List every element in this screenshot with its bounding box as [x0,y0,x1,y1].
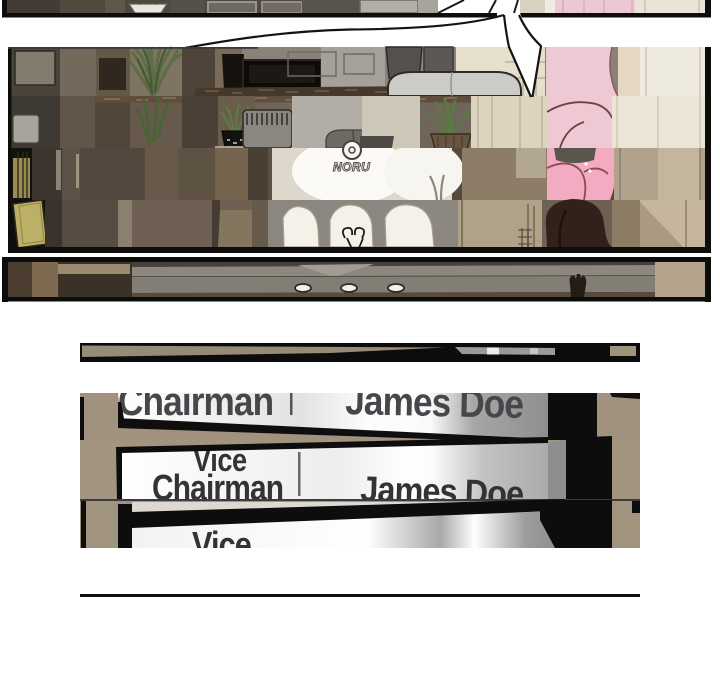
svg-text:NORU: NORU [333,160,370,174]
